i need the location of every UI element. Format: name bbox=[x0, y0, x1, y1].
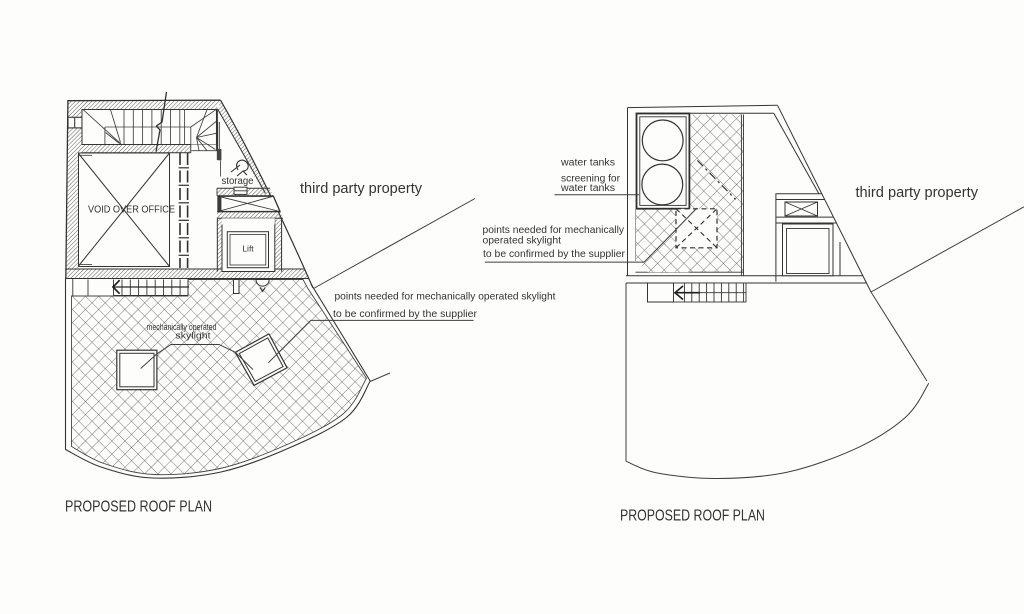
svg-text:to be confirmed by the supplie: to be confirmed by the supplier bbox=[483, 248, 625, 260]
svg-text:PROPOSED ROOF PLAN: PROPOSED ROOF PLAN bbox=[620, 508, 765, 525]
svg-text:third party property: third party property bbox=[300, 180, 422, 197]
svg-text:PROPOSED ROOF PLAN: PROPOSED ROOF PLAN bbox=[65, 499, 212, 516]
svg-text:to be confirmed by the supplie: to be confirmed by the supplier bbox=[333, 308, 477, 320]
svg-text:Lift: Lift bbox=[242, 244, 254, 254]
svg-text:VOID OVER OFFICE: VOID OVER OFFICE bbox=[88, 205, 175, 216]
svg-text:water tanks: water tanks bbox=[560, 183, 615, 194]
svg-text:skylight: skylight bbox=[176, 331, 212, 341]
svg-text:points needed for mechanically: points needed for mechanically operated … bbox=[335, 291, 556, 303]
svg-text:water tanks: water tanks bbox=[560, 158, 615, 169]
svg-text:storage: storage bbox=[222, 176, 255, 187]
svg-text:third party property: third party property bbox=[856, 184, 979, 201]
svg-text:operated skylight: operated skylight bbox=[483, 235, 562, 247]
